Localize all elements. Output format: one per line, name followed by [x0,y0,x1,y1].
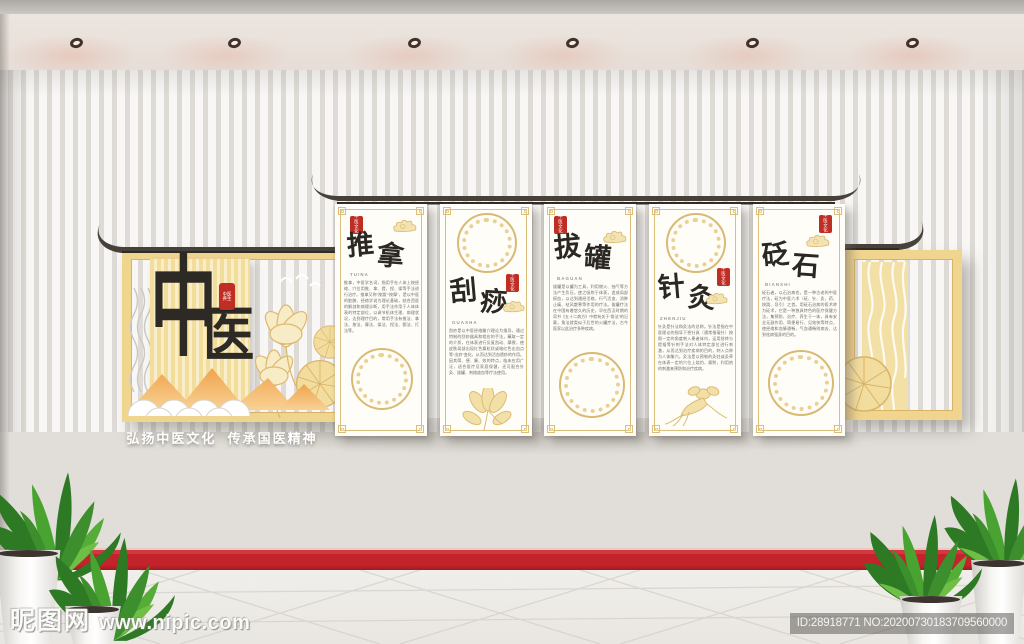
ring-ornament [768,350,834,416]
ring-ornament [666,213,726,273]
panel-title: 砭石 [762,242,816,269]
ceiling-edge [0,0,1024,14]
panel-body: 针灸是针法和灸法的总称。针法是指在中医理论的指导下把针具（通常指毫针）按照一定的… [658,324,733,372]
center-roof-eave [303,174,869,206]
panel-guasha: 中医文化 刮痧 GUASHA 刮痧是以中医经络腧穴理论为指导，通过特制的刮痧器具… [440,204,532,436]
downlight-icon [565,37,580,50]
panel-bianshi: 中医文化 砭石 BIANSHI 砭石者，以石治病也，是一种古老的中医疗法，砭为中… [753,204,845,436]
panel-seal: 中医文化 [819,215,832,233]
panel-body: 砭石者，以石治病也，是一种古老的中医疗法，砭为中医六术（砭、针、灸、药、按跷、导… [762,290,837,338]
panel-title: 针灸 [658,274,712,301]
panel-title: 刮痧 [450,278,504,305]
downlight-icon [905,37,920,50]
downlight-icon [407,37,422,50]
image-id-watermark: ID:28918771 NO:20200730183709560000 [790,613,1014,634]
panel-pinyin: TUINA [350,272,369,277]
panel-seal: 中医文化 [717,268,730,286]
site-url: www.nipic.com [99,612,250,635]
panel-zhenjiu: 中医文化 针灸 ZHENJIU 针灸是针法和灸法的总称。针法是指在中医理论的指导… [649,204,741,436]
panel-title: 拔罐 [554,234,608,261]
brand-seal: 中医养生 [219,283,235,310]
cloud-icon [705,292,730,305]
cloud-icon [502,300,527,313]
panel-body: 拔罐是以罐为工具，利用燃火、抽气等方法产生负压，使之吸附于体表，造成局部瘀血，以… [553,284,628,332]
downlight-icon [227,37,242,50]
panel-pinyin: GUASHA [452,320,478,325]
panel-body: 推拿，中医学名词，指用手在人体上按经络、穴位用推、拿、提、捏、揉等手法进行治疗。… [344,280,419,334]
mountains-ornament [128,358,340,416]
panel-pinyin: BIANSHI [765,282,791,287]
site-logo: 昵图网 [10,601,91,637]
panel-baguan: 中医文化 拔罐 BAGUAN 拔罐是以罐为工具，利用燃火、抽气等方法产生负压，使… [544,204,636,436]
panel-pinyin: ZHENJIU [660,316,687,321]
brand-seal-text: 中医养生 [223,292,232,302]
downlight-icon [69,37,84,50]
left-roof-eave [92,224,344,254]
ring-ornament [351,348,413,410]
scene: 中 医 中医养生 弘扬中 [0,0,1024,644]
ring-ornament [457,213,517,273]
peony-ornament [452,388,520,432]
panel-title: 推拿 [347,232,401,259]
birds-icon [278,270,324,290]
panel-tuina: 中医文化 推拿 TUINA 推拿，中医学名词，指用手在人体上按经络、穴位用推、拿… [335,204,427,436]
ceiling [0,14,1024,70]
ring-ornament [559,352,625,418]
brand-slogan: 弘扬中医文化 传承国医精神 [116,428,328,447]
downlight-icon [745,37,760,50]
cloud-icon [392,219,419,233]
right-roof-eave [843,221,929,253]
panel-pinyin: BAGUAN [557,276,583,281]
site-watermark: 昵图网 www.nipic.com [10,601,250,637]
panel-body: 刮痧是以中医经络腧穴理论为指导，通过特制的刮痧器具和相应的手法，蘸取一定的介质，… [449,328,524,376]
ginseng-ornament [663,384,729,430]
